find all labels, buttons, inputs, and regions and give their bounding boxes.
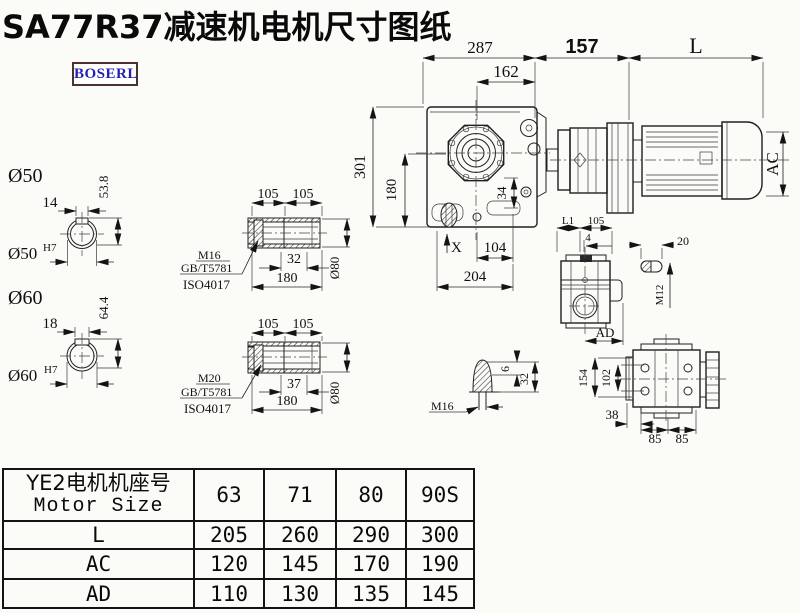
drawing-page: SA77R37减速机电机尺寸图纸 BOSERL: [0, 0, 800, 613]
dim-105c: 105: [258, 317, 279, 332]
cell: 130: [264, 579, 336, 608]
dim-102: 102: [599, 369, 613, 387]
cell: 300: [406, 521, 474, 549]
dim-37: 37: [287, 377, 301, 392]
gearbox-bottom-view: 154 102 38 85 85: [576, 334, 726, 446]
bore-60-label: Ø60: [8, 287, 42, 309]
oil-plug: [441, 203, 457, 227]
bore-50-label: Ø50: [8, 165, 42, 187]
dim-157: 157: [565, 36, 598, 58]
motor-size-table: YE2电机机座号 Motor Size 63 71 80 90S L 205 2…: [2, 468, 475, 609]
cell: 190: [406, 549, 474, 579]
cell: 170: [336, 549, 406, 579]
column-63: 63: [194, 469, 264, 521]
dim-85a: 85: [649, 431, 662, 446]
dim-85b: 85: [676, 431, 689, 446]
dim-32-tip: 32: [517, 373, 531, 385]
dim-180: 180: [384, 179, 400, 202]
table-row: L 205 260 290 300: [3, 521, 474, 549]
cell: 205: [194, 521, 264, 549]
key-detail: 20 M12: [629, 234, 689, 308]
bore-50-tolerance: H7: [43, 242, 57, 254]
dim-38: 38: [606, 407, 619, 422]
dim-287: 287: [467, 38, 493, 57]
dim-6: 6: [498, 366, 512, 372]
hollow-shaft-detail-2: 105 105 37 180 Ø80 M20 GB/T5781 ISO4017: [180, 317, 350, 416]
gearbox-front-view: [416, 100, 550, 240]
table-header-label: YE2电机机座号 Motor Size: [3, 469, 194, 521]
dim-dia80b: Ø80: [327, 382, 342, 404]
column-71: 71: [264, 469, 336, 521]
header-label-cn: YE2电机机座号: [4, 471, 193, 495]
mounting-bolt-holes: [641, 364, 692, 395]
bore-60-fit: Ø60: [8, 366, 37, 385]
table-header-row: YE2电机机座号 Motor Size 63 71 80 90S: [3, 469, 474, 521]
row-label-AC: AC: [3, 549, 194, 579]
dim-154: 154: [576, 369, 590, 387]
dim-keyway-18: 18: [43, 316, 58, 332]
shaft-detail-50: Ø50 14 53.8 Ø50 H7: [8, 165, 122, 266]
dim-AD: AD: [596, 325, 615, 340]
header-label-en: Motor Size: [4, 495, 193, 519]
standard-iso-label-2: ISO4017: [184, 401, 231, 416]
cell: 135: [336, 579, 406, 608]
dim-64.4: 64.4: [96, 296, 111, 319]
motor-fins: [646, 132, 718, 190]
motor-side-view: [547, 122, 790, 213]
dim-AC: AC: [763, 152, 782, 176]
cell: 145: [406, 579, 474, 608]
table-row: AD 110 130 135 145: [3, 579, 474, 608]
dim-32: 32: [287, 252, 301, 267]
bore-60-tolerance: H7: [44, 364, 58, 376]
dim-X: X: [451, 240, 462, 256]
dim-204: 204: [464, 269, 487, 285]
dim-L: L: [689, 33, 702, 58]
column-80: 80: [336, 469, 406, 521]
dim-104: 104: [484, 240, 507, 256]
dim-53.8: 53.8: [96, 176, 111, 199]
standard-gb-label-2: GB/T5781: [181, 385, 232, 399]
dim-keyway-14: 14: [43, 195, 59, 211]
cell: 110: [194, 579, 264, 608]
standard-gb-label-1: GB/T5781: [181, 261, 232, 275]
dim-105a: 105: [258, 187, 279, 202]
dim-L1: L1: [562, 215, 574, 227]
dim-4: 4: [585, 232, 591, 244]
cell: 260: [264, 521, 336, 549]
dim-105b: 105: [293, 187, 314, 202]
thread-m12-label: M12: [654, 285, 666, 306]
bore-50-fit: Ø50: [8, 244, 37, 263]
column-90s: 90S: [406, 469, 474, 521]
thread-m16-tip-label: M16: [431, 399, 454, 413]
dim-162: 162: [493, 62, 519, 81]
shaft-detail-60: Ø60 18 64.4 Ø60 H7: [8, 287, 122, 388]
dim-301: 301: [352, 155, 369, 179]
cell: 290: [336, 521, 406, 549]
dim-dia80a: Ø80: [327, 257, 342, 279]
cell: 145: [264, 549, 336, 579]
bolt-tip-detail: M16 6 32: [429, 352, 539, 413]
dim-105d: 105: [293, 317, 314, 332]
fan-cover-fins: [706, 360, 719, 400]
row-label-L: L: [3, 521, 194, 549]
thread-m20-label: M20: [198, 371, 221, 385]
table-row: AC 120 145 170 190: [3, 549, 474, 579]
dim-20: 20: [677, 234, 689, 248]
thread-m16-label: M16: [198, 248, 221, 262]
row-label-AD: AD: [3, 579, 194, 608]
standard-iso-label-1: ISO4017: [183, 277, 230, 292]
dim-180a: 180: [277, 271, 298, 286]
hollow-shaft-detail-1: 105 105 32 180 Ø80 M16 GB/T5781 ISO4017: [180, 187, 350, 292]
cell: 120: [194, 549, 264, 579]
dim-34: 34: [494, 186, 509, 200]
dim-180b: 180: [277, 394, 298, 409]
dim-105e: 105: [588, 215, 605, 227]
gearbox-side-view: L1 105 4 AD: [557, 215, 623, 345]
